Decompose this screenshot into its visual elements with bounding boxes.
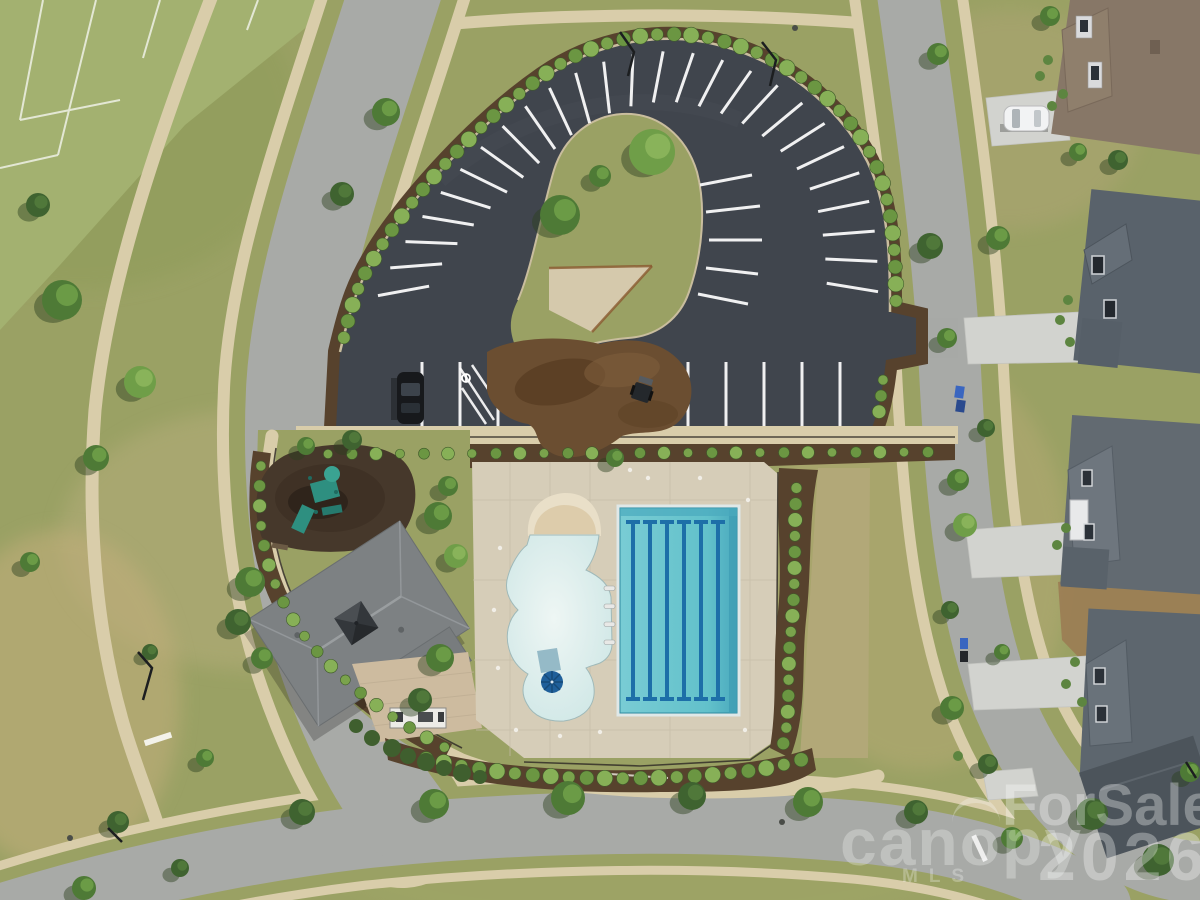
shrub — [461, 131, 477, 147]
shrub — [370, 447, 383, 460]
shrub — [844, 116, 858, 130]
tree-highlight — [259, 649, 271, 661]
shrub — [256, 461, 266, 471]
shrub — [426, 169, 442, 185]
tree-highlight — [135, 369, 153, 387]
chimney — [1150, 40, 1160, 54]
shrub — [785, 626, 796, 637]
shrub — [632, 28, 648, 44]
shrub — [525, 76, 539, 90]
shrub — [833, 104, 845, 116]
trash-bin — [960, 651, 968, 662]
shrub — [406, 196, 418, 208]
shrub — [583, 41, 599, 57]
shrub — [601, 37, 613, 49]
shrub — [899, 448, 908, 457]
tree-highlight — [1087, 801, 1105, 819]
shrub — [580, 771, 594, 785]
shrub — [554, 58, 566, 70]
umbrella-shadow — [537, 648, 561, 673]
shrub — [795, 71, 807, 83]
deck-chair — [698, 476, 702, 480]
shrub — [683, 448, 692, 457]
shrub — [278, 596, 290, 608]
shrub — [258, 540, 270, 552]
tree-highlight — [303, 439, 313, 449]
tree-highlight — [994, 228, 1007, 241]
shrub — [827, 448, 836, 457]
shrub — [489, 763, 505, 779]
tree-highlight — [597, 167, 609, 179]
shrub — [439, 158, 451, 170]
shrub — [870, 160, 884, 174]
shrub — [338, 332, 350, 344]
shrub — [658, 447, 671, 460]
shrub — [568, 49, 582, 63]
shrub — [388, 712, 398, 722]
shrub-dark — [417, 753, 435, 771]
shrub — [781, 722, 792, 733]
shrub — [586, 447, 599, 460]
shrub — [562, 448, 573, 459]
shrub — [788, 546, 801, 559]
parking-stripe — [405, 242, 457, 244]
shrub — [651, 28, 663, 40]
shrub — [702, 31, 714, 43]
shrub — [256, 521, 266, 531]
tree-highlight — [948, 698, 961, 711]
shrub — [850, 447, 861, 458]
shrub — [863, 146, 875, 158]
shrub — [370, 698, 384, 712]
shrub — [450, 144, 464, 158]
shrub — [514, 447, 527, 460]
shrub — [888, 244, 900, 256]
window — [1091, 66, 1099, 80]
shrub — [688, 769, 702, 783]
tree-highlight — [27, 554, 38, 565]
tree-highlight — [688, 785, 703, 800]
tree-highlight — [434, 505, 449, 520]
shrub — [1065, 337, 1075, 347]
white-suv — [1000, 106, 1049, 132]
tree-highlight — [382, 101, 397, 116]
tree-highlight — [645, 134, 670, 159]
shrub — [874, 446, 887, 459]
shrub — [538, 65, 554, 81]
shrub — [808, 80, 822, 94]
window — [1082, 470, 1092, 486]
pool-ladder — [604, 640, 615, 645]
deck-chair — [646, 476, 650, 480]
shrub — [262, 558, 276, 572]
tree-highlight — [298, 802, 312, 816]
shrub — [539, 449, 548, 458]
shrub-dark — [400, 748, 416, 764]
shrub — [498, 97, 514, 113]
tree-highlight — [983, 421, 993, 431]
tree-highlight — [804, 790, 821, 807]
garage-roof — [1078, 318, 1123, 368]
tree-highlight — [912, 802, 925, 815]
shrub — [385, 223, 399, 237]
tree-highlight — [452, 546, 465, 559]
deck-chair — [492, 608, 496, 612]
tree-highlight — [1153, 847, 1171, 865]
tree-highlight — [56, 284, 78, 306]
tree-highlight — [961, 515, 974, 528]
tree-highlight — [416, 690, 429, 703]
tree-highlight — [177, 861, 187, 871]
tree-highlight — [202, 751, 212, 761]
shrub — [888, 276, 904, 292]
shrub — [820, 91, 836, 107]
tree-highlight — [436, 647, 451, 662]
shrub — [883, 209, 897, 223]
shrub — [755, 448, 764, 457]
tree-highlight — [1000, 646, 1009, 655]
dark-car — [391, 372, 424, 424]
pool-umbrella — [541, 671, 563, 693]
shrub — [1061, 679, 1071, 689]
pool-ladder — [604, 586, 615, 591]
shrub — [513, 88, 525, 100]
shrub-dark — [383, 739, 401, 757]
tree-highlight — [985, 756, 996, 767]
shrub-dark — [436, 760, 452, 776]
shrub — [758, 760, 774, 776]
tree-highlight — [80, 878, 93, 891]
shrub — [311, 646, 323, 658]
tree-highlight — [955, 471, 967, 483]
shrub — [787, 561, 801, 575]
shrub — [1055, 315, 1065, 325]
shrub — [617, 772, 629, 784]
shrub — [526, 768, 540, 782]
trash-bin — [955, 400, 966, 413]
shrub — [253, 499, 267, 513]
shrub — [634, 447, 645, 458]
manhole — [779, 819, 785, 825]
deck-chair — [514, 728, 518, 732]
shrub — [543, 768, 559, 784]
deck-chair — [746, 498, 750, 502]
shrub-dark — [349, 719, 363, 733]
tree-highlight — [612, 451, 622, 461]
shrub — [324, 659, 338, 673]
tree-highlight — [92, 448, 106, 462]
shrub — [376, 238, 388, 250]
shrub — [439, 742, 449, 752]
deck-chair — [498, 546, 502, 550]
shrub — [881, 193, 893, 205]
shrub — [683, 27, 699, 43]
shrub — [782, 689, 795, 702]
shrub — [355, 687, 367, 699]
tree-highlight — [246, 570, 263, 587]
shrub — [1047, 101, 1057, 111]
tree-highlight — [430, 792, 447, 809]
shrub — [358, 266, 372, 280]
shrub — [874, 175, 890, 191]
shrub — [341, 314, 355, 328]
shrub — [922, 447, 933, 458]
shrub — [781, 705, 795, 719]
shrub — [418, 448, 429, 459]
shrub — [1058, 89, 1068, 99]
house-3 — [1060, 415, 1200, 595]
shrub — [953, 751, 963, 761]
tree-highlight — [935, 45, 947, 57]
shrub — [442, 447, 455, 460]
shrub — [490, 448, 501, 459]
shrub — [706, 447, 717, 458]
deck-chair — [558, 734, 562, 738]
shrub — [779, 60, 795, 76]
lap-pool-top-edge — [620, 508, 737, 516]
mulch-spread — [618, 400, 678, 428]
shrub — [345, 297, 361, 313]
shrub-dark — [453, 764, 471, 782]
shrub — [340, 675, 350, 685]
shrub — [486, 109, 500, 123]
shrub — [750, 46, 762, 58]
shrub — [785, 609, 799, 623]
shrub — [885, 225, 901, 241]
shrub — [1035, 71, 1045, 81]
shrub — [783, 641, 796, 654]
lap-pool-deep-edge — [729, 508, 737, 713]
shrub — [416, 182, 430, 196]
shrub — [789, 498, 802, 511]
shrub — [1061, 523, 1071, 533]
shrub — [323, 449, 332, 458]
shrub — [741, 764, 755, 778]
shrub — [888, 260, 902, 274]
tree-highlight — [1075, 145, 1085, 155]
shrub — [783, 674, 794, 685]
shrub — [778, 758, 790, 770]
shrub — [634, 771, 648, 785]
shrub — [791, 483, 802, 494]
shrub — [733, 38, 749, 54]
scene-canvas — [0, 0, 1200, 900]
deck-chair — [743, 728, 747, 732]
tree-highlight — [554, 199, 576, 221]
shrub — [1077, 697, 1087, 707]
shrub — [730, 446, 743, 459]
window — [1080, 20, 1088, 32]
window — [1104, 300, 1116, 318]
shrub — [778, 447, 789, 458]
house-2 — [1073, 189, 1200, 375]
shrub — [1052, 540, 1062, 550]
tree-highlight — [1009, 829, 1021, 841]
deck-chair — [598, 730, 602, 734]
tree-highlight — [349, 432, 360, 443]
shrub — [352, 283, 364, 295]
shrub — [794, 753, 808, 767]
garage-roof — [1061, 546, 1110, 589]
driveway — [966, 522, 1078, 578]
window — [1084, 524, 1094, 540]
shrub — [705, 767, 721, 783]
window — [1096, 706, 1107, 722]
shrub — [467, 449, 476, 458]
shrub — [782, 657, 796, 671]
aerial-photo: canopy MLS ForSale 2026 — [0, 0, 1200, 900]
tree-highlight — [115, 813, 127, 825]
shrub — [1063, 295, 1073, 305]
tree-highlight — [563, 784, 582, 803]
shrub — [667, 27, 681, 41]
shrub — [395, 449, 404, 458]
tree-highlight — [445, 478, 456, 489]
manhole — [67, 835, 73, 841]
shrub — [651, 770, 667, 786]
shrub — [270, 579, 280, 589]
shrub — [802, 446, 815, 459]
tree-highlight — [234, 612, 248, 626]
tree-highlight — [1115, 152, 1126, 163]
tree-highlight — [947, 603, 957, 613]
tree-highlight — [926, 236, 940, 250]
tree-highlight — [338, 184, 351, 197]
driveway — [964, 312, 1084, 364]
shrub — [286, 613, 300, 627]
shrub — [875, 390, 887, 402]
trash-bin — [960, 638, 968, 649]
shrub — [300, 631, 310, 641]
tree-highlight — [1047, 8, 1058, 19]
shrub — [872, 405, 886, 419]
shrub — [509, 767, 521, 779]
shrub — [788, 513, 802, 527]
shrub — [789, 579, 800, 590]
tree-highlight — [34, 195, 47, 208]
shrub — [1070, 657, 1080, 667]
shrub-dark — [473, 770, 487, 784]
shrub — [366, 251, 382, 267]
pool-ladder — [604, 604, 615, 609]
deck-chair — [628, 468, 632, 472]
lap-pool — [618, 506, 739, 715]
shrub — [890, 295, 902, 307]
manhole — [792, 25, 798, 31]
shrub — [790, 531, 801, 542]
shrub — [394, 208, 410, 224]
tree-highlight — [944, 330, 955, 341]
shrub-dark — [364, 730, 380, 746]
shrub — [671, 771, 683, 783]
trash-bin — [954, 386, 965, 399]
shrub — [717, 34, 731, 48]
shrub — [254, 480, 266, 492]
shrub — [724, 767, 736, 779]
window — [1092, 256, 1104, 274]
shrub — [475, 121, 487, 133]
tree-highlight — [148, 646, 157, 655]
shrub — [597, 770, 613, 786]
pool-ladder — [604, 622, 615, 627]
shrub — [853, 129, 869, 145]
shrub — [420, 731, 434, 745]
shrub — [787, 594, 800, 607]
shrub — [404, 722, 416, 734]
deck-chair — [496, 666, 500, 670]
shrub — [1043, 55, 1053, 65]
shrub — [878, 375, 888, 385]
shrub — [777, 737, 790, 750]
window — [1094, 668, 1105, 684]
